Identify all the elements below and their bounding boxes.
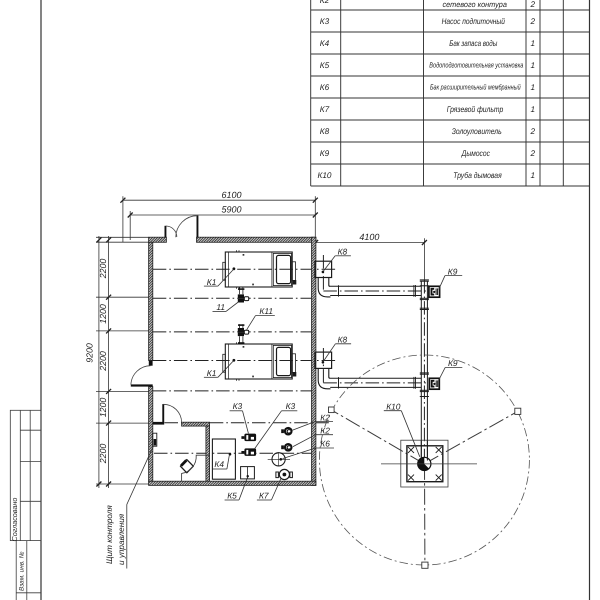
svg-text:Грязевой фильтр: Грязевой фильтр — [447, 105, 504, 114]
svg-text:К9: К9 — [320, 149, 330, 158]
svg-text:Золоуловитель: Золоуловитель — [452, 127, 502, 136]
svg-text:К2: К2 — [320, 412, 330, 422]
svg-text:К9: К9 — [448, 358, 458, 368]
svg-text:2200: 2200 — [98, 444, 108, 465]
svg-text:1: 1 — [531, 61, 536, 70]
svg-text:1: 1 — [531, 39, 536, 48]
svg-text:К8: К8 — [338, 247, 348, 257]
svg-text:К3: К3 — [233, 401, 243, 411]
svg-text:К4: К4 — [320, 39, 330, 48]
svg-text:Согласовано: Согласовано — [10, 498, 19, 542]
svg-text:К8: К8 — [338, 335, 348, 345]
svg-text:К7: К7 — [320, 105, 330, 114]
svg-text:К10: К10 — [318, 171, 332, 180]
svg-text:2200: 2200 — [98, 259, 108, 280]
svg-text:6100: 6100 — [221, 190, 241, 200]
svg-text:сетевого контура: сетевого контура — [442, 0, 507, 9]
svg-text:1: 1 — [531, 105, 536, 114]
svg-text:и управления: и управления — [117, 513, 126, 565]
svg-text:11: 11 — [216, 302, 225, 312]
svg-text:К8: К8 — [320, 127, 330, 136]
svg-text:К4: К4 — [214, 459, 224, 469]
svg-text:4100: 4100 — [359, 232, 379, 242]
svg-text:2: 2 — [530, 149, 536, 158]
svg-text:2200: 2200 — [98, 351, 108, 372]
svg-text:К1: К1 — [207, 368, 217, 378]
svg-text:К2: К2 — [320, 425, 330, 435]
svg-text:Дымосос: Дымосос — [461, 149, 490, 158]
svg-text:Взам. инв. №: Взам. инв. № — [19, 551, 26, 591]
svg-text:Щит контроля: Щит контроля — [105, 505, 114, 564]
svg-text:К9: К9 — [448, 267, 458, 277]
svg-text:К10: К10 — [386, 401, 401, 411]
svg-text:9200: 9200 — [85, 343, 95, 363]
svg-text:К5: К5 — [320, 61, 330, 70]
svg-text:5900: 5900 — [221, 205, 241, 215]
svg-text:Бак запаса воды: Бак запаса воды — [449, 39, 497, 48]
svg-text:Труба дымовая: Труба дымовая — [453, 171, 502, 180]
svg-text:К6: К6 — [320, 83, 330, 92]
svg-text:Насос подпиточный: Насос подпиточный — [442, 17, 506, 26]
svg-text:Бак расширительный мембранный: Бак расширительный мембранный — [430, 83, 521, 92]
svg-text:1200: 1200 — [98, 304, 108, 324]
svg-text:2: 2 — [530, 127, 536, 136]
svg-text:К3: К3 — [320, 17, 330, 26]
svg-text:1: 1 — [531, 171, 536, 180]
svg-text:К7: К7 — [259, 491, 269, 501]
svg-text:К1: К1 — [207, 277, 217, 287]
svg-text:1: 1 — [531, 83, 536, 92]
svg-text:Водоподготовительная установка: Водоподготовительная установка — [429, 61, 523, 70]
svg-text:К2: К2 — [320, 0, 330, 5]
svg-text:К6: К6 — [320, 439, 330, 449]
svg-text:К3: К3 — [286, 401, 296, 411]
svg-text:К5: К5 — [227, 491, 237, 501]
svg-text:2: 2 — [530, 17, 536, 26]
svg-text:К11: К11 — [259, 306, 273, 316]
svg-text:1200: 1200 — [98, 398, 108, 418]
svg-text:2: 2 — [530, 0, 536, 9]
